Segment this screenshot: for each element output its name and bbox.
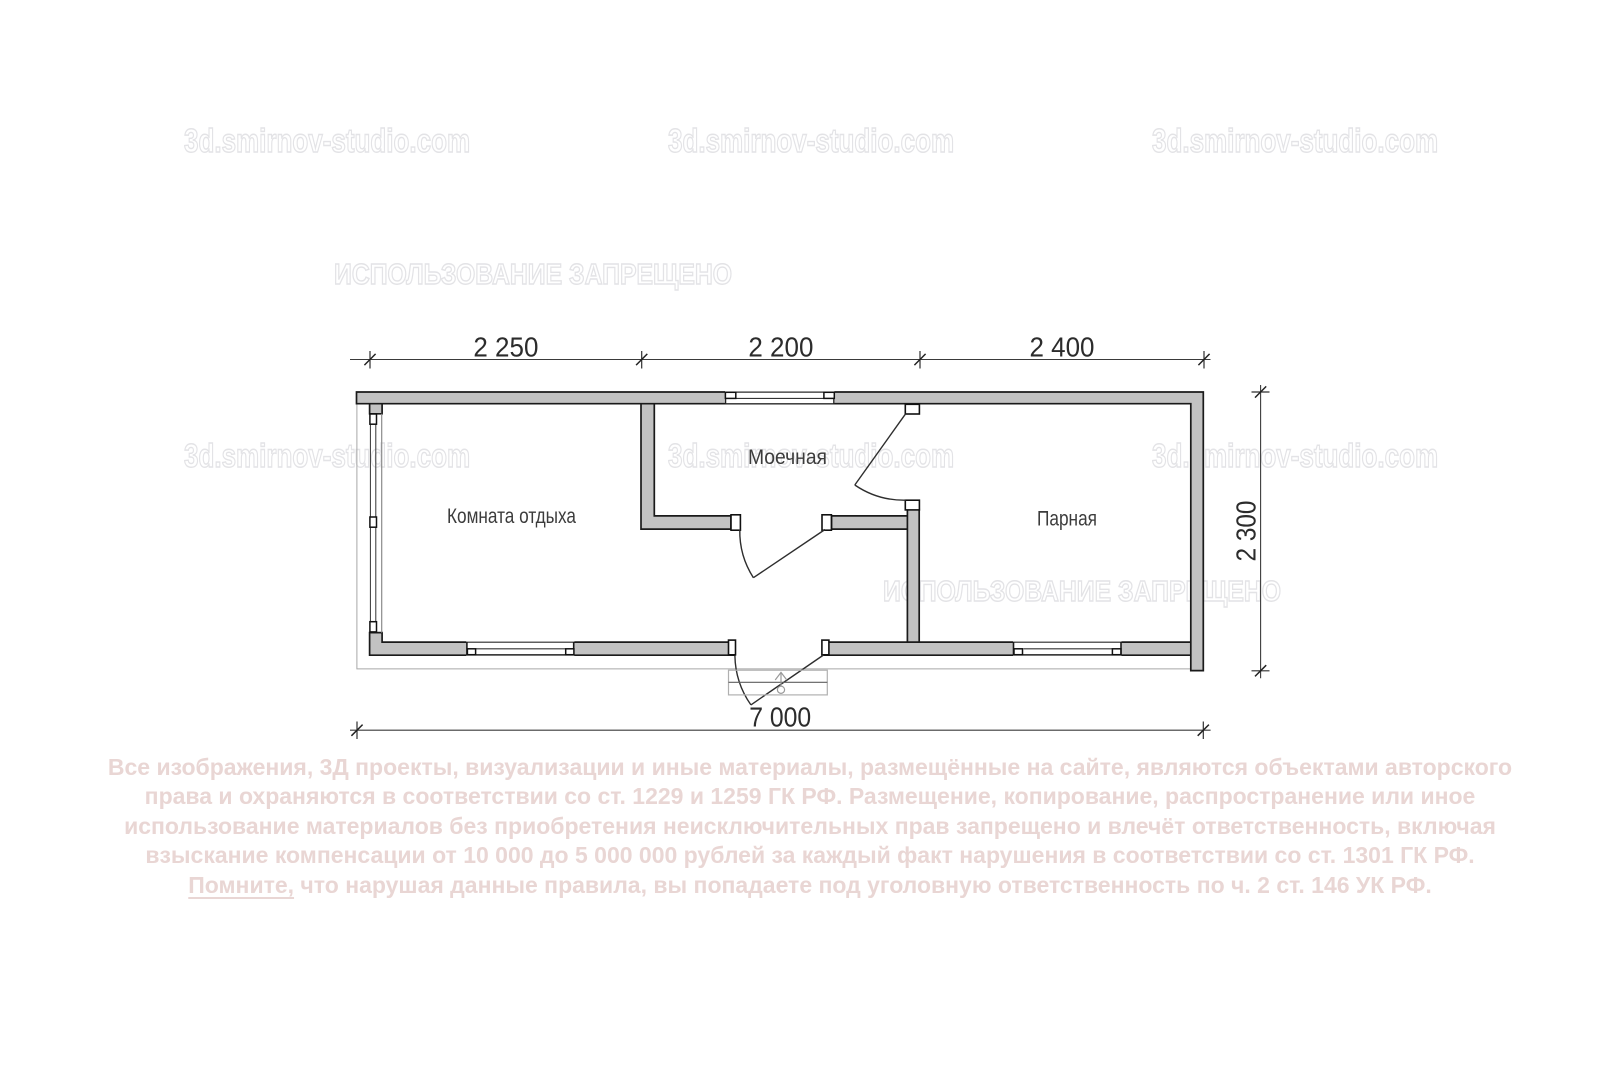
svg-text:Моечная: Моечная [748, 446, 827, 469]
svg-text:Парная: Парная [1037, 508, 1097, 531]
svg-text:2 200: 2 200 [748, 332, 813, 363]
svg-text:2 250: 2 250 [473, 332, 538, 363]
svg-text:2 300: 2 300 [1231, 501, 1262, 562]
svg-text:7 000: 7 000 [749, 702, 811, 733]
svg-text:2 400: 2 400 [1030, 332, 1095, 363]
svg-text:Комната отдыха: Комната отдыха [447, 505, 576, 528]
